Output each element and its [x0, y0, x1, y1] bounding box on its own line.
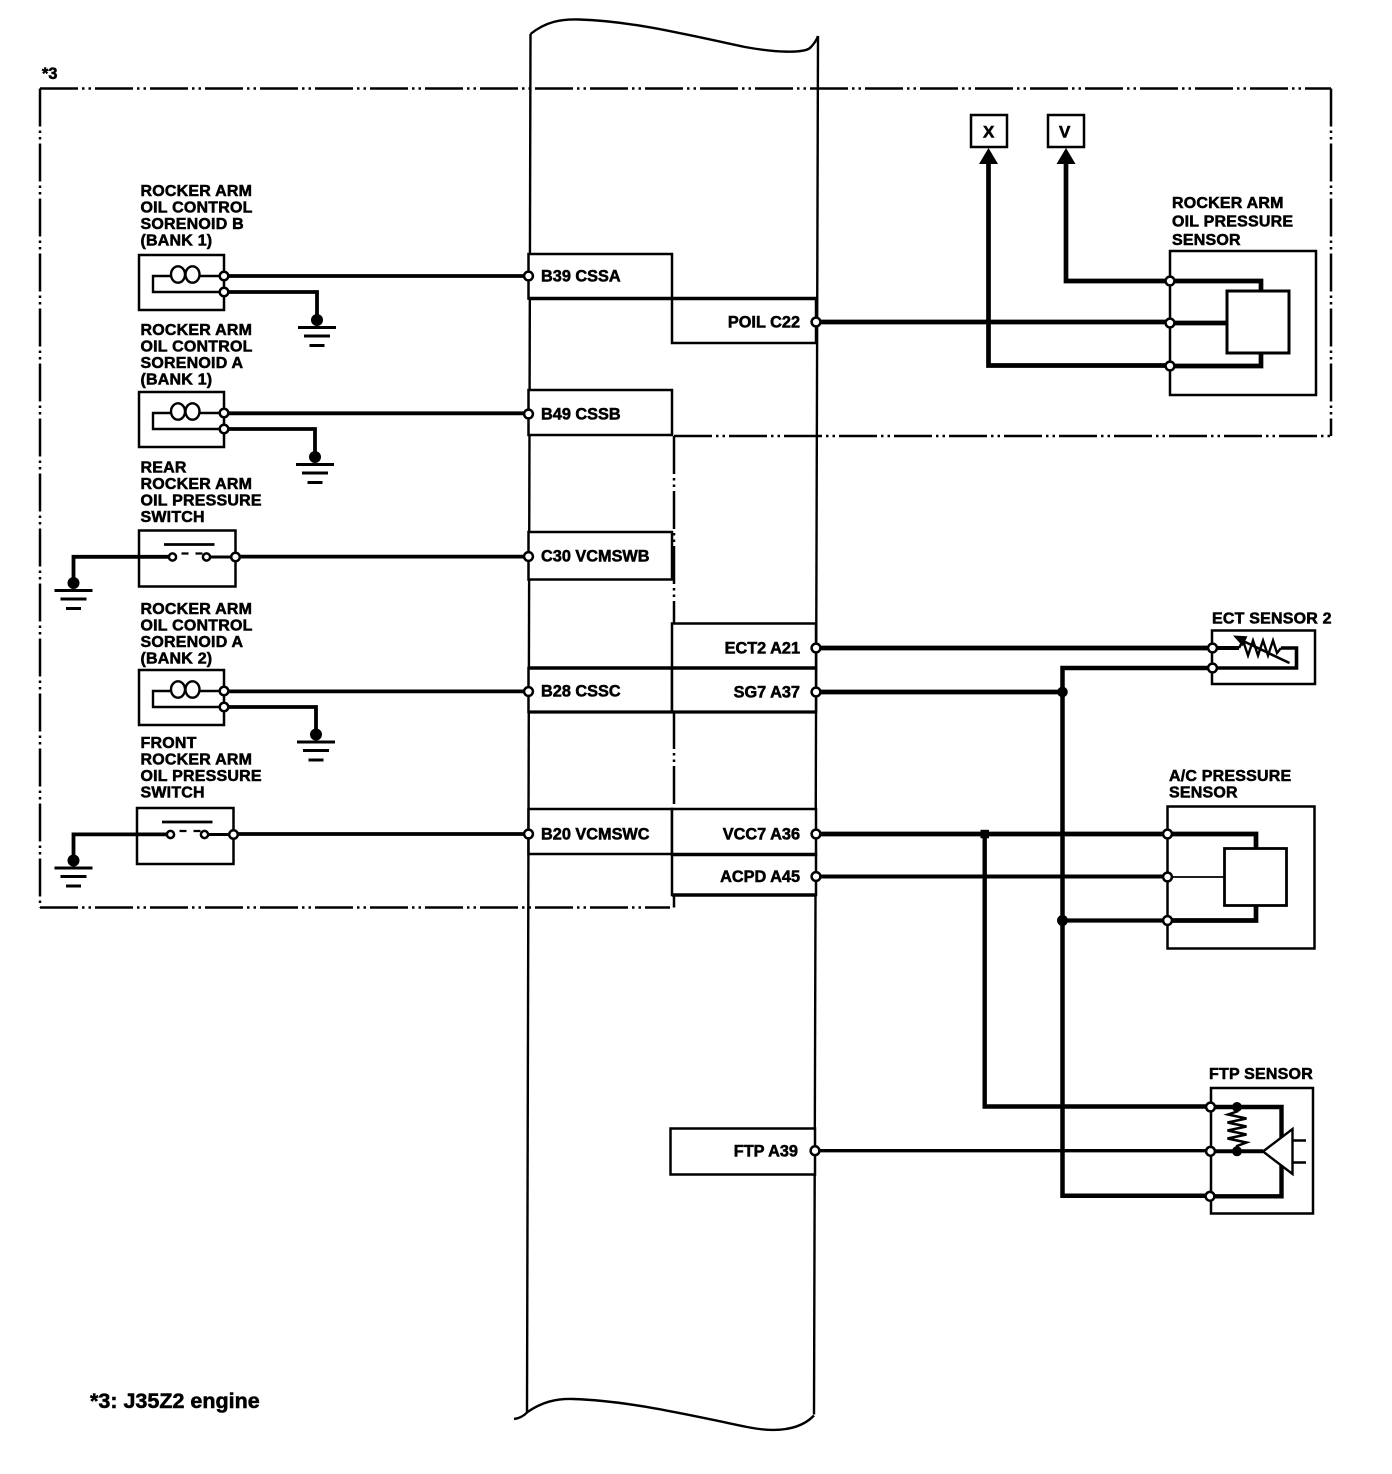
- svg-text:B20 VCMSWC: B20 VCMSWC: [541, 826, 650, 844]
- svg-text:SENSOR: SENSOR: [1169, 785, 1238, 802]
- svg-text:SORENOID A: SORENOID A: [141, 355, 244, 372]
- svg-text:(BANK 1): (BANK 1): [141, 372, 213, 389]
- svg-text:SENSOR: SENSOR: [1172, 232, 1241, 249]
- svg-text:C30 VCMSWB: C30 VCMSWB: [541, 548, 650, 566]
- svg-text:FTP SENSOR: FTP SENSOR: [1209, 1066, 1313, 1083]
- svg-text:B28 CSSC: B28 CSSC: [541, 683, 621, 701]
- svg-text:SWITCH: SWITCH: [141, 785, 205, 802]
- svg-text:SORENOID B: SORENOID B: [141, 216, 244, 233]
- svg-text:X: X: [983, 123, 995, 142]
- svg-text:B39 CSSA: B39 CSSA: [541, 268, 621, 286]
- svg-text:V: V: [1059, 123, 1071, 142]
- svg-text:SORENOID A: SORENOID A: [141, 634, 244, 651]
- svg-text:ROCKER ARM: ROCKER ARM: [141, 322, 253, 339]
- svg-text:OIL PRESSURE: OIL PRESSURE: [141, 768, 262, 785]
- svg-text:OIL CONTROL: OIL CONTROL: [141, 339, 253, 356]
- svg-text:(BANK 2): (BANK 2): [141, 651, 213, 668]
- svg-text:ECT2 A21: ECT2 A21: [725, 640, 800, 658]
- svg-text:FTP A39: FTP A39: [734, 1143, 798, 1161]
- svg-text:B49 CSSB: B49 CSSB: [541, 406, 621, 424]
- svg-text:ROCKER ARM: ROCKER ARM: [1172, 195, 1284, 212]
- svg-text:(BANK 1): (BANK 1): [141, 233, 213, 250]
- svg-text:ROCKER ARM: ROCKER ARM: [141, 476, 253, 493]
- svg-text:ECT SENSOR 2: ECT SENSOR 2: [1212, 611, 1332, 628]
- svg-text:A/C PRESSURE: A/C PRESSURE: [1169, 768, 1292, 785]
- svg-text:POIL C22: POIL C22: [728, 314, 800, 332]
- svg-text:SG7 A37: SG7 A37: [734, 684, 800, 702]
- svg-text:*3: J35Z2 engine: *3: J35Z2 engine: [90, 1389, 260, 1413]
- svg-text:REAR: REAR: [141, 460, 187, 477]
- svg-text:OIL PRESSURE: OIL PRESSURE: [1172, 214, 1293, 231]
- svg-text:ROCKER ARM: ROCKER ARM: [141, 601, 253, 618]
- svg-text:SWITCH: SWITCH: [141, 509, 205, 526]
- svg-text:OIL CONTROL: OIL CONTROL: [141, 618, 253, 635]
- svg-text:ROCKER ARM: ROCKER ARM: [141, 183, 253, 200]
- svg-text:ROCKER ARM: ROCKER ARM: [141, 752, 253, 769]
- svg-text:OIL PRESSURE: OIL PRESSURE: [141, 493, 262, 510]
- svg-text:VCC7 A36: VCC7 A36: [723, 826, 800, 844]
- svg-text:ACPD A45: ACPD A45: [720, 868, 800, 886]
- svg-text:FRONT: FRONT: [141, 735, 197, 752]
- svg-text:OIL CONTROL: OIL CONTROL: [141, 200, 253, 217]
- svg-text:*3: *3: [42, 65, 57, 83]
